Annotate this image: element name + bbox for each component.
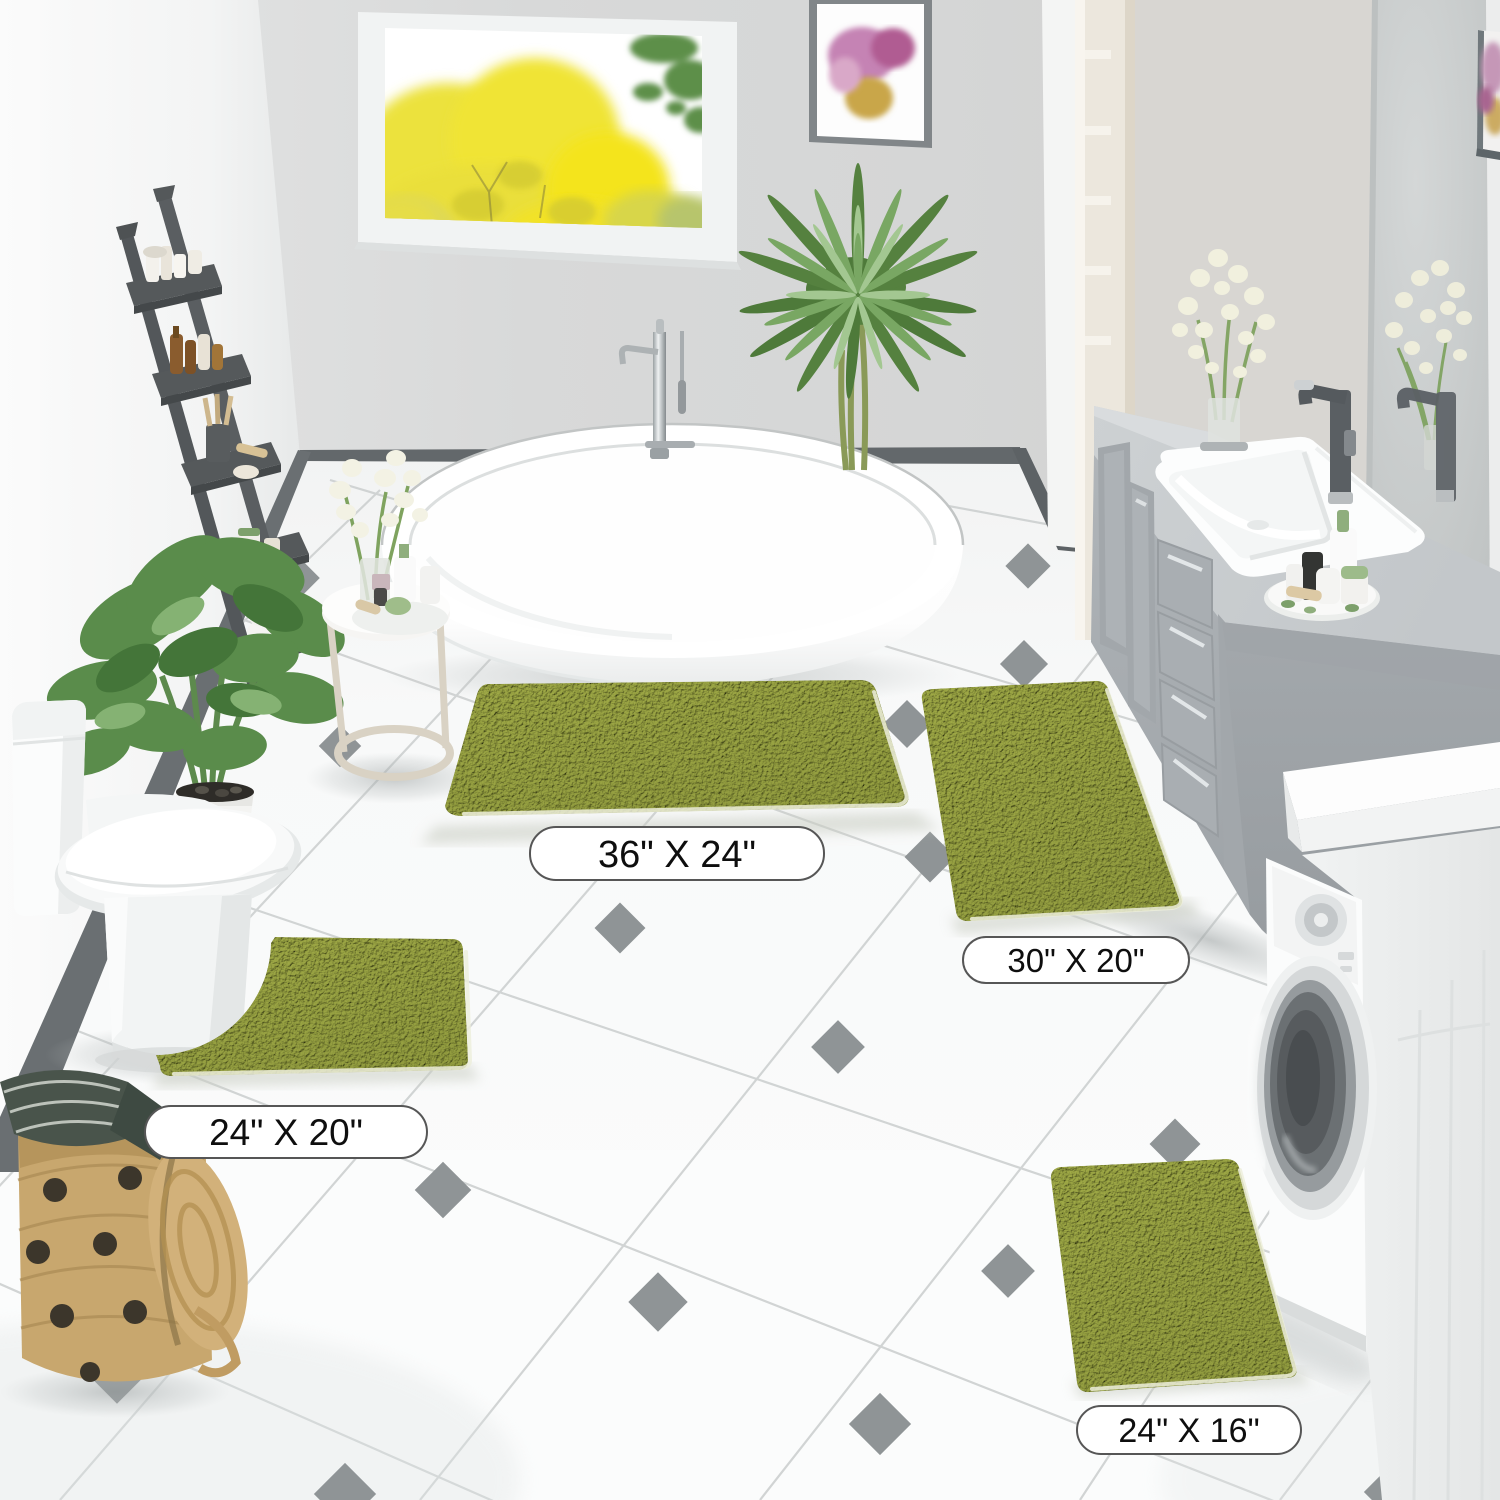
svg-text:24" X 16": 24" X 16" [1118, 1412, 1259, 1450]
svg-text:24" X 20": 24" X 20" [209, 1112, 363, 1153]
svg-text:36" X 24": 36" X 24" [598, 834, 756, 876]
svg-text:30" X 20": 30" X 20" [1007, 942, 1144, 979]
